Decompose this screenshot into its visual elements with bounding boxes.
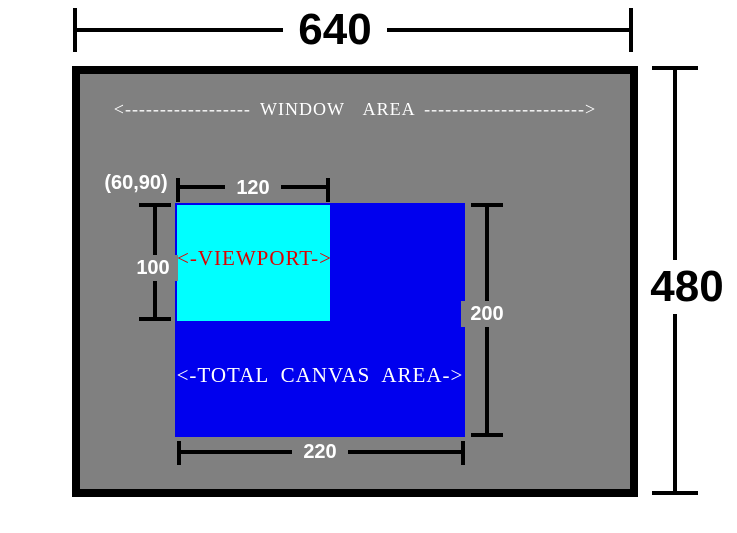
viewport-height-label: 100 [128,255,178,281]
dimension-tbar-bottom [471,433,503,437]
dimension-tbar-bottom [652,491,698,495]
dimension-tick-right [629,8,633,52]
canvas-label: <-TOTAL CANVAS AREA-> [175,363,465,388]
canvas-origin-label: (60,90) [99,172,173,194]
canvas-height-label: 200 [461,301,513,327]
dimension-tbar-top [471,203,503,207]
diagram-stage: 640 480 <------------------ WINDOW AREA … [0,0,737,533]
dimension-tbar-top [652,66,698,70]
canvas-width-label: 220 [292,440,348,464]
dimension-tick-left [176,178,180,202]
dimension-tick-right [461,441,465,465]
dimension-tick-right [326,178,330,202]
viewport-width-label: 120 [225,176,281,200]
window-width-label: 640 [283,6,387,54]
viewport-label: <-VIEWPORT-> [177,246,330,271]
window-height-label: 480 [644,260,730,314]
window-area-label: <------------------ WINDOW AREA --------… [72,99,638,120]
dimension-tick-left [73,8,77,52]
dimension-tbar-top [139,203,171,207]
dimension-tbar-bottom [139,317,171,321]
dimension-tick-left [177,441,181,465]
